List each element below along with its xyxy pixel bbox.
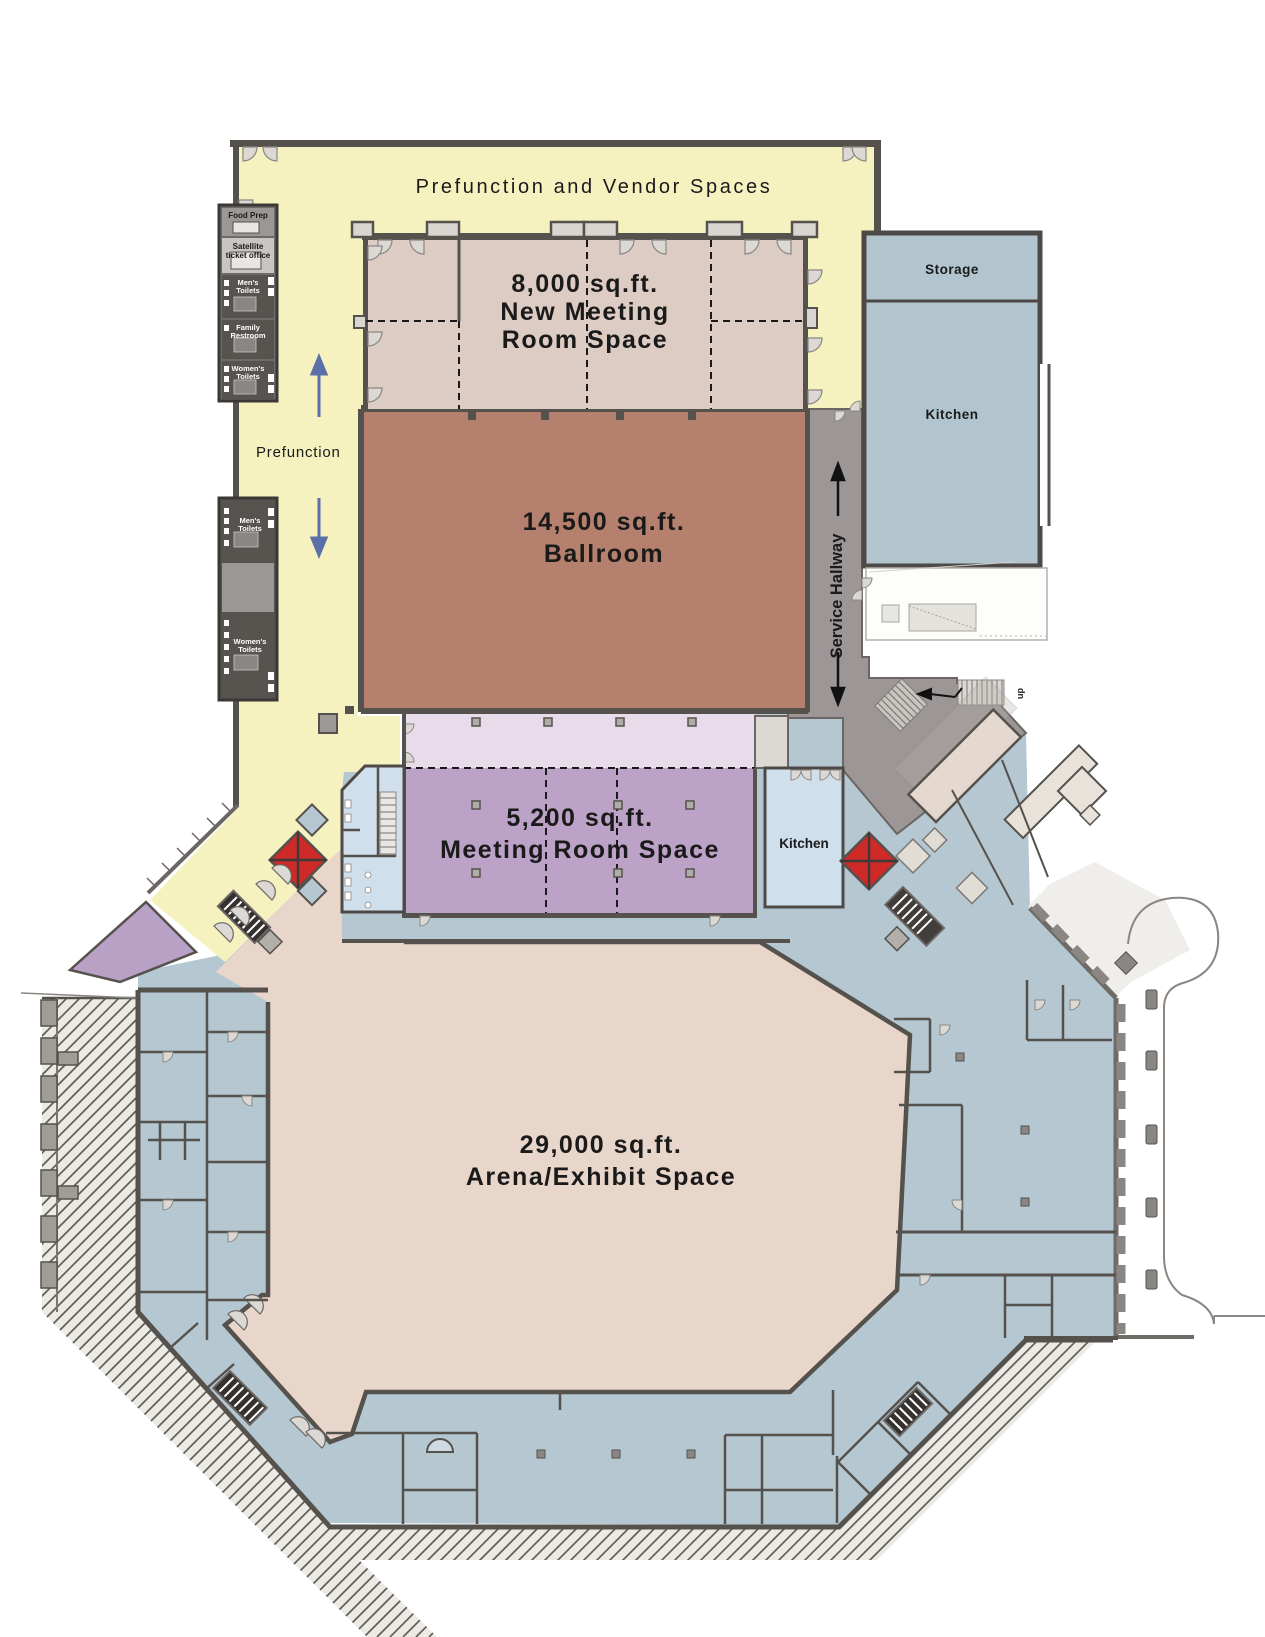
svg-text:14,500 sq.ft.: 14,500 sq.ft.: [523, 508, 686, 536]
svg-text:Prefunction and Vendor Spaces: Prefunction and Vendor Spaces: [416, 176, 773, 198]
svg-text:Toilets: Toilets: [236, 286, 260, 295]
svg-text:Ballroom: Ballroom: [544, 540, 664, 568]
svg-text:Food Prep: Food Prep: [228, 211, 268, 220]
svg-text:Meeting Room Space: Meeting Room Space: [440, 836, 720, 864]
svg-text:Toilets: Toilets: [238, 645, 262, 654]
svg-text:29,000 sq.ft.: 29,000 sq.ft.: [520, 1131, 683, 1159]
svg-text:Service Hallway: Service Hallway: [828, 533, 846, 659]
svg-text:Restroom: Restroom: [230, 331, 265, 340]
svg-text:New Meeting: New Meeting: [500, 298, 669, 326]
svg-text:Satellite: Satellite: [233, 242, 264, 251]
svg-text:Toilets: Toilets: [238, 524, 262, 533]
svg-text:Room Space: Room Space: [502, 326, 668, 354]
svg-text:Storage: Storage: [925, 262, 979, 277]
svg-text:Kitchen: Kitchen: [925, 407, 978, 422]
svg-text:Prefunction: Prefunction: [256, 444, 341, 461]
svg-text:up: up: [1015, 688, 1025, 699]
svg-text:Toilets: Toilets: [236, 372, 260, 381]
svg-text:ticket office: ticket office: [226, 251, 271, 260]
svg-text:Arena/Exhibit Space: Arena/Exhibit Space: [466, 1163, 736, 1191]
svg-text:5,200 sq.ft.: 5,200 sq.ft.: [506, 804, 653, 832]
svg-text:8,000 sq.ft.: 8,000 sq.ft.: [511, 270, 658, 298]
svg-text:Kitchen: Kitchen: [779, 836, 829, 851]
